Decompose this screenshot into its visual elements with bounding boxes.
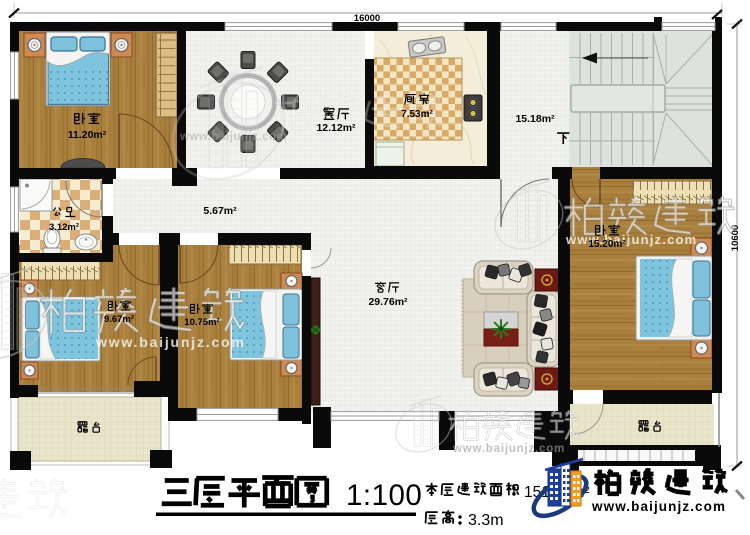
svg-text:www.baijunjz.com: www.baijunjz.com	[179, 131, 287, 143]
svg-text:9.67m²: 9.67m²	[104, 314, 134, 325]
svg-text:12.12m²: 12.12m²	[316, 122, 356, 134]
svg-text:1:100: 1:100	[346, 479, 422, 512]
svg-text:3.12m²: 3.12m²	[49, 222, 79, 233]
svg-text:www.baijunjz.com: www.baijunjz.com	[452, 443, 565, 455]
svg-text:10.75m²: 10.75m²	[184, 317, 219, 328]
svg-text:15.20m²: 15.20m²	[588, 239, 626, 250]
svg-text:7.53m²: 7.53m²	[401, 109, 433, 120]
svg-text:29.76m²: 29.76m²	[368, 296, 408, 308]
svg-text:15.18m²: 15.18m²	[515, 113, 555, 125]
svg-text:3.3m: 3.3m	[468, 512, 504, 529]
svg-text:16000: 16000	[354, 13, 380, 24]
svg-text:www.baijunjz.com: www.baijunjz.com	[591, 499, 726, 514]
svg-text:www.baijunjz.com: www.baijunjz.com	[565, 232, 697, 247]
svg-text:5.67m²: 5.67m²	[203, 205, 237, 217]
svg-text:11.20m²: 11.20m²	[68, 129, 107, 141]
svg-text:www.baijunjz.com: www.baijunjz.com	[95, 334, 246, 350]
